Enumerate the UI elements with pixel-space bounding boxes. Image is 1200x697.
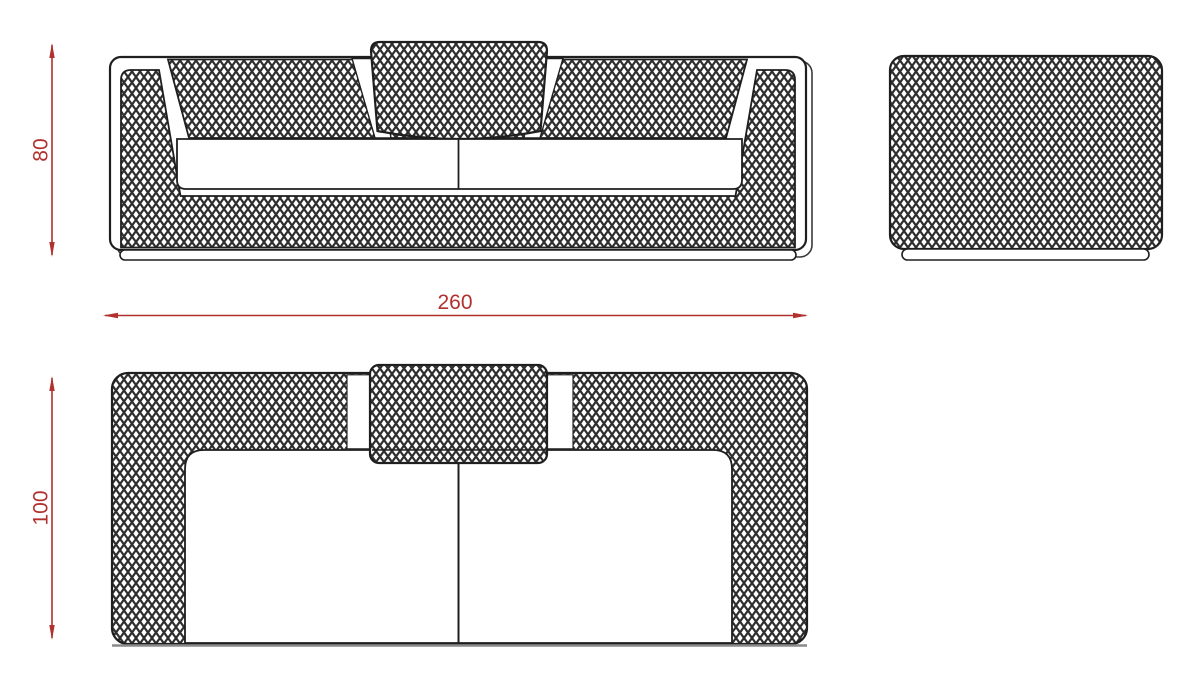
arrow-down-icon <box>49 625 54 640</box>
front-view <box>110 42 812 260</box>
arrow-up-icon <box>49 376 54 391</box>
top-view <box>112 365 807 646</box>
technical-drawing-canvas: 80 260 100 <box>0 0 1200 697</box>
front-plinth <box>120 250 796 260</box>
front-headrest-cushion <box>371 42 547 139</box>
dimension-label-width: 260 <box>437 291 472 314</box>
sofa-orthographic-views: 80 260 100 <box>0 0 1200 697</box>
arrow-right-icon <box>793 313 808 318</box>
dimension-label-height: 80 <box>30 138 53 161</box>
dimension-height-80: 80 <box>30 43 55 257</box>
dimension-width-260: 260 <box>103 291 808 318</box>
dimension-depth-100: 100 <box>30 376 55 640</box>
arrow-down-icon <box>49 242 54 257</box>
side-body <box>890 56 1162 249</box>
front-seat-cushions <box>177 139 742 189</box>
top-headrest <box>370 365 547 463</box>
dimension-label-depth: 100 <box>30 490 53 525</box>
arrow-up-icon <box>49 43 54 58</box>
arrow-left-icon <box>103 313 118 318</box>
top-headrest-seam-left <box>347 375 370 449</box>
top-headrest-seam-right <box>547 375 573 449</box>
side-plinth <box>902 249 1149 260</box>
side-view <box>890 56 1162 260</box>
